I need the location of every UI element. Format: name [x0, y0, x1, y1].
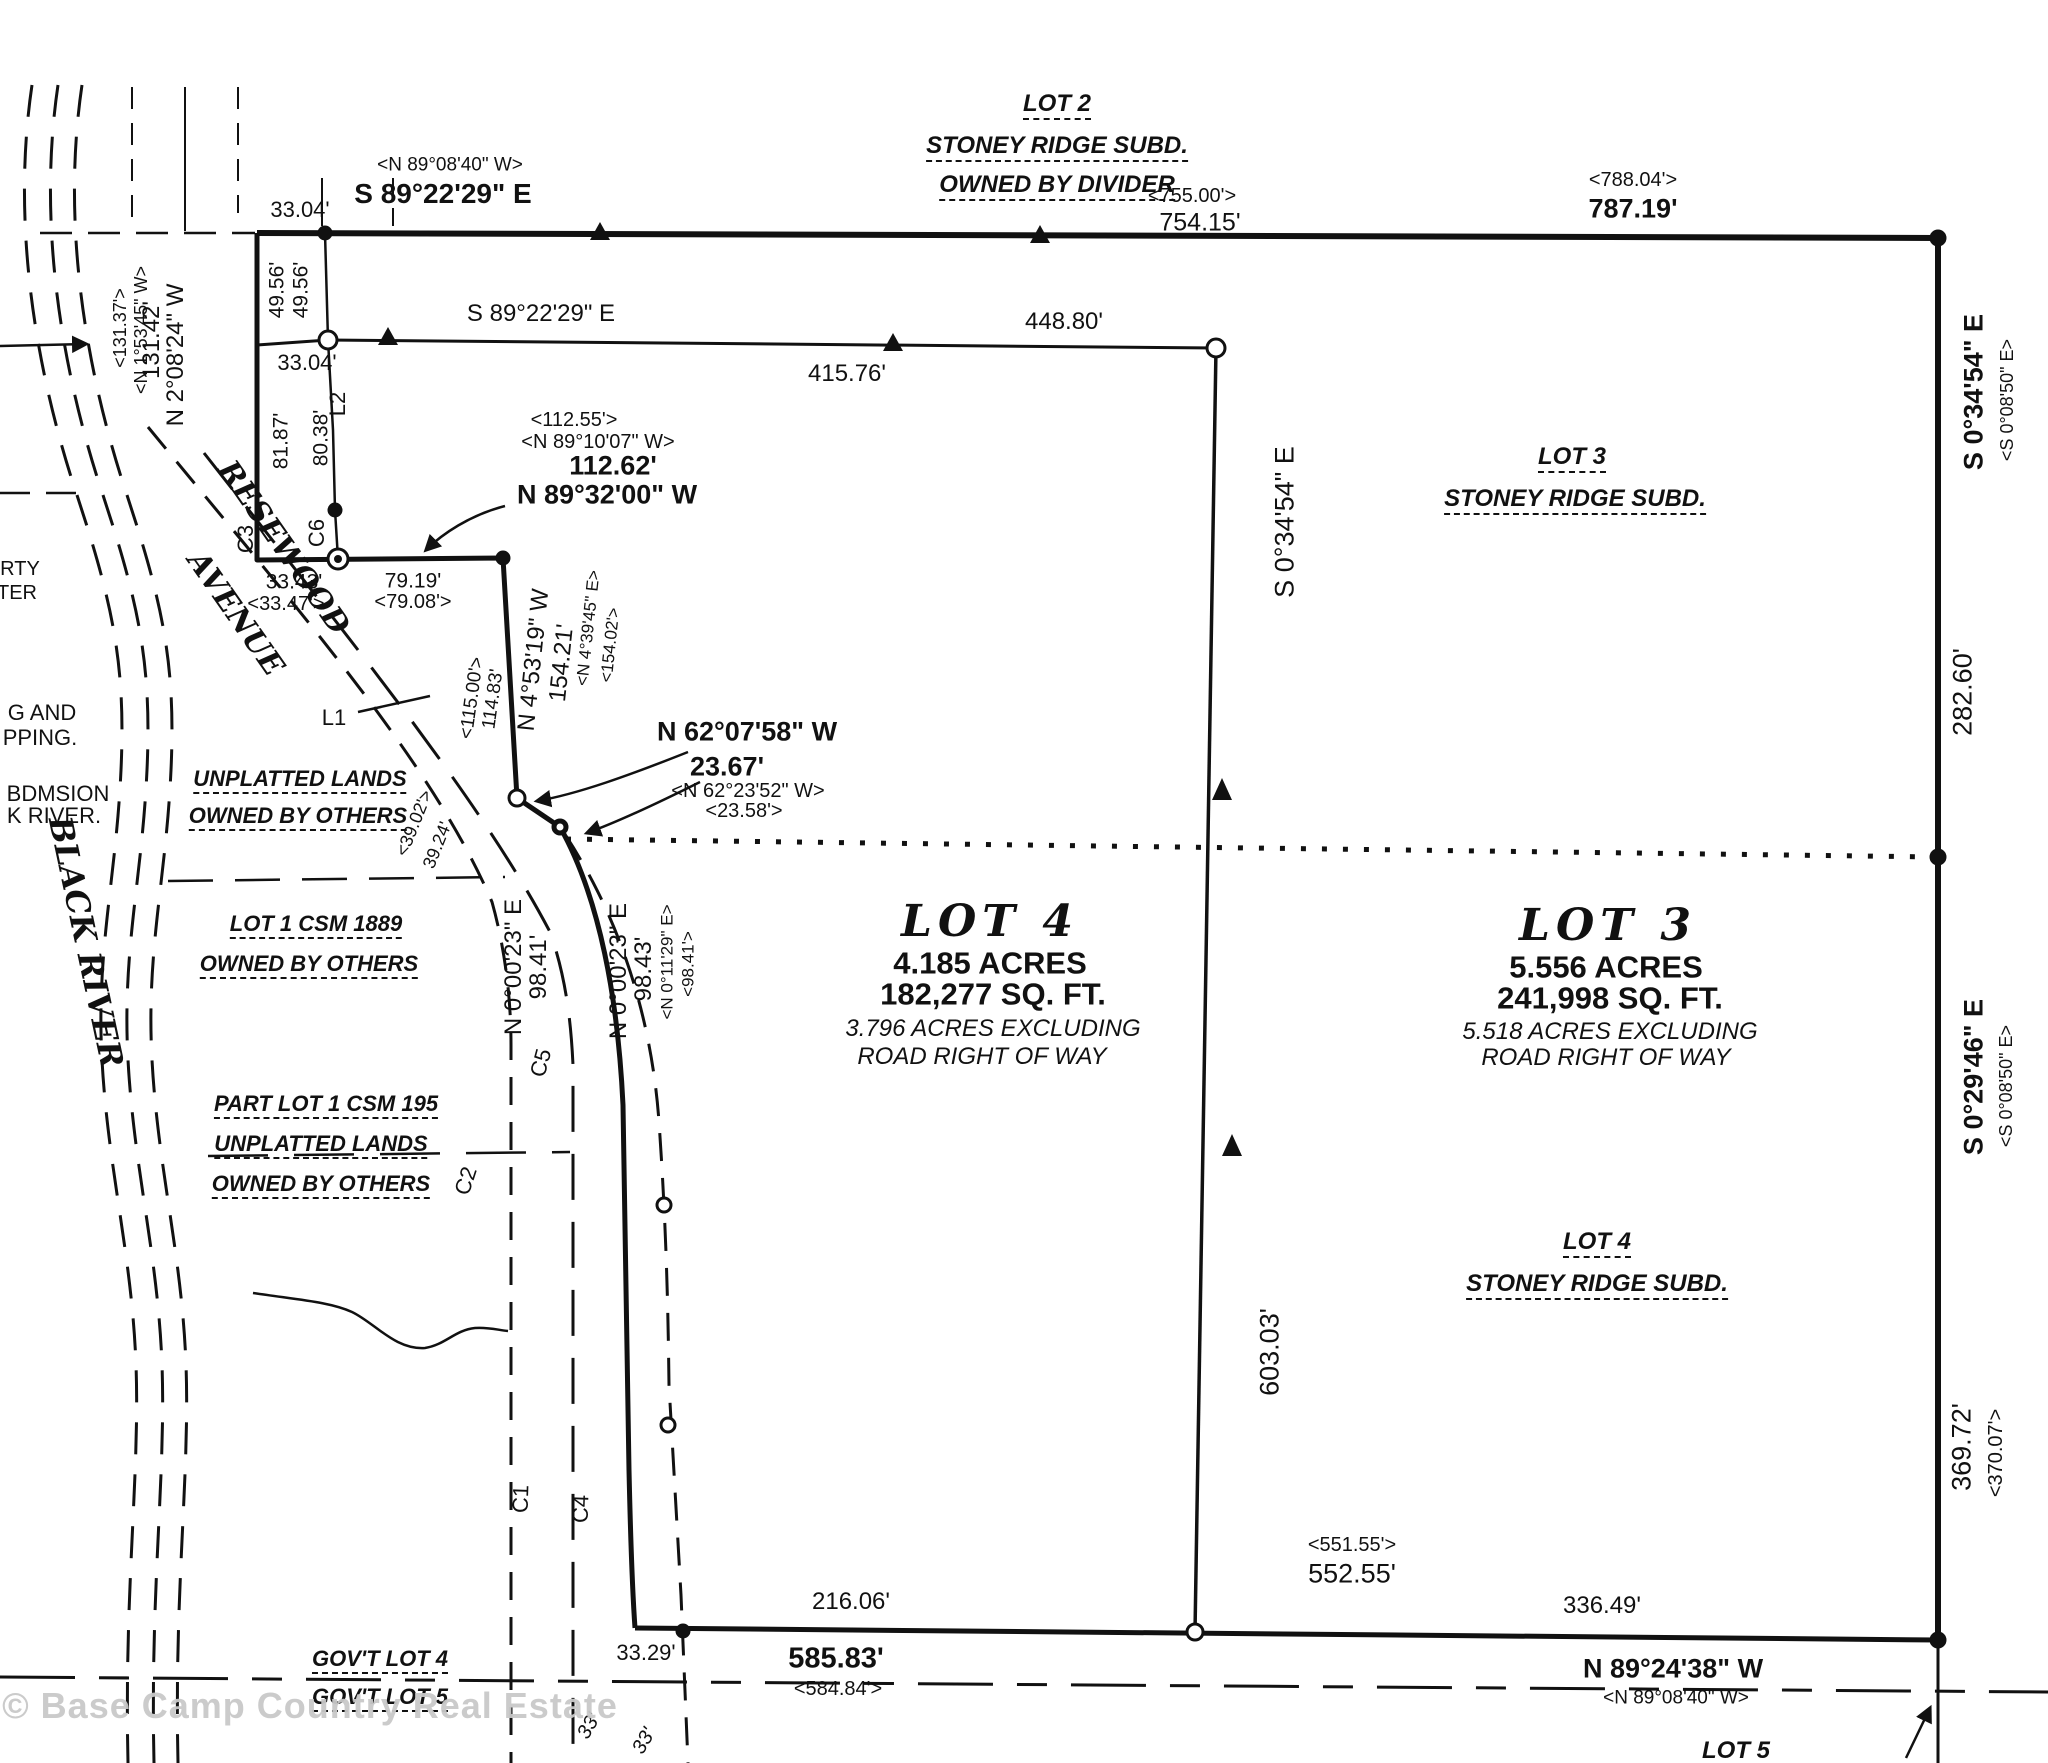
- dim-75500: <755.00'>: [1148, 186, 1236, 206]
- lot4-se-subd: STONEY RIDGE SUBD.: [1466, 1272, 1728, 1300]
- lbl-c5: C5: [527, 1047, 556, 1080]
- dim-37007: <370.07'>: [1986, 1409, 2006, 1497]
- unplatted-1a: UNPLATTED LANDS: [193, 768, 406, 794]
- dim-55155: <551.55'>: [1308, 1535, 1396, 1555]
- dim-13137: <131.37'>: [111, 288, 129, 368]
- lot3-ne-title: LOT 3: [1538, 445, 1606, 473]
- dim-78719: 787.19': [1588, 196, 1677, 223]
- brg-s03454e-int: S 0°34'54" E: [1272, 446, 1299, 598]
- lot3-excl-1: 5.518 ACRES EXCLUDING: [1462, 1020, 1757, 1044]
- lot3-acres: 5.556 ACRES: [1509, 952, 1703, 983]
- dim-60303: 603.03': [1257, 1308, 1284, 1396]
- dim-58583: 585.83': [788, 1645, 884, 1674]
- brg-n892438w: N 89°24'38" W: [1583, 1656, 1763, 1683]
- dim-11262: 112.62': [569, 453, 657, 480]
- dim-7919: 79.19': [385, 571, 442, 592]
- lot4-excl-1: 3.796 ACRES EXCLUDING: [845, 1017, 1140, 1041]
- csm195-c: OWNED BY OTHERS: [212, 1173, 430, 1199]
- lot4-excl-2: ROAD RIGHT OF WAY: [857, 1045, 1106, 1069]
- dim-3304-2: 33.04': [277, 352, 336, 374]
- dim-11255: <112.55'>: [531, 410, 618, 430]
- dim-4956-a: 49.56': [267, 262, 288, 319]
- dim-4956-b: 49.56': [291, 262, 312, 319]
- dim-55255: 552.55': [1308, 1561, 1396, 1588]
- dim-78804: <788.04'>: [1589, 170, 1677, 190]
- brg-n891007w: <N 89°10'07" W>: [521, 432, 674, 452]
- dim-3924: 39.24': [420, 819, 455, 871]
- cut-bdmsion: BDMSION: [7, 783, 110, 805]
- brg-n00023e-w: N 0°00'23" E: [502, 899, 526, 1035]
- lot4-sqft: 182,277 SQ. FT.: [880, 979, 1106, 1010]
- cut-pping: PPING.: [3, 727, 78, 749]
- river-name: BLACK RIVER: [44, 813, 129, 1070]
- lot5-se: LOT 5: [1702, 1739, 1770, 1763]
- lbl-l1: L1: [322, 707, 346, 729]
- lot2-subd: STONEY RIDGE SUBD.: [926, 134, 1188, 162]
- brg-n622352w: <N 62°23'52" W>: [671, 781, 824, 801]
- plat-labels: 33.04'S 89°22'29" E<N 89°08'40" W>LOT 2S…: [0, 0, 2048, 1763]
- dim-3329: 33.29': [616, 1642, 675, 1664]
- dim-44880: 448.80': [1025, 310, 1103, 334]
- lbl-c2: C2: [451, 1164, 481, 1198]
- lot3-title: LOT 3: [1519, 904, 1697, 948]
- cut-rty: RTY: [0, 559, 40, 579]
- dim-9841-w: 98.41': [527, 935, 551, 1000]
- dim-7908: <79.08'>: [374, 592, 451, 612]
- watermark: © Base Camp Country Real Estate: [2, 1688, 618, 1724]
- brg-n890840w-top: <N 89°08'40" W>: [377, 156, 523, 175]
- dim-41576: 415.76': [808, 362, 886, 386]
- brg-n620758w: N 62°07'58" W: [657, 719, 837, 746]
- cut-g-and: G AND: [8, 702, 76, 724]
- csm195-a: PART LOT 1 CSM 195: [214, 1093, 438, 1119]
- dim-2358: <23.58'>: [705, 801, 782, 821]
- lbl-c1: C1: [510, 1485, 533, 1514]
- dim-9843: 98.43': [632, 937, 656, 1002]
- dim-8038: 80.38': [311, 410, 332, 467]
- brg-n20824w: N 2°08'24" W: [164, 284, 188, 427]
- brg-s00850e-r1: <S 0°08'50" E>: [1998, 339, 2016, 461]
- dim-33649: 336.49': [1563, 1594, 1641, 1618]
- csm1889-b: OWNED BY OTHERS: [200, 953, 418, 979]
- brg-s892229e-top: S 89°22'29" E: [354, 180, 531, 208]
- lot4-se-title: LOT 4: [1563, 1230, 1631, 1258]
- dim-28260: 282.60': [1950, 648, 1977, 736]
- csm195-b: UNPLATTED LANDS: [214, 1133, 427, 1159]
- dim-9841-e: <98.41'>: [680, 931, 697, 997]
- dim-15402: <154.02'>: [598, 607, 623, 683]
- dim-33-b: 33': [629, 1725, 659, 1758]
- brg-s02946e: S 0°29'46" E: [1961, 999, 1988, 1155]
- brg-n890840w-bot: <N 89°08'40" W>: [1603, 1689, 1749, 1708]
- brg-n01129e: <N 0°11'29" E>: [659, 904, 676, 1019]
- lbl-c4: C4: [570, 1495, 593, 1524]
- brg-n893200w: N 89°32'00" W: [517, 482, 697, 509]
- lot3-excl-2: ROAD RIGHT OF WAY: [1481, 1046, 1730, 1070]
- brg-s892229e-2: S 89°22'29" E: [467, 302, 615, 326]
- lbl-c6: C6: [306, 519, 328, 547]
- csm1889-a: LOT 1 CSM 1889: [230, 913, 402, 939]
- dim-21606: 216.06': [812, 1590, 890, 1614]
- dim-8187: 81.87': [271, 413, 292, 470]
- lot2-title: LOT 2: [1023, 92, 1091, 120]
- lot3-ne-subd: STONEY RIDGE SUBD.: [1444, 487, 1706, 515]
- dim-58484: <584.84'>: [794, 1679, 882, 1699]
- dim-3304-top: 33.04': [270, 199, 329, 221]
- lot2-owner: OWNED BY DIVIDER: [939, 173, 1175, 201]
- dim-15421: 154.21': [546, 623, 578, 703]
- dim-36972: 369.72': [1949, 1403, 1976, 1491]
- lot4-title: LOT 4: [901, 900, 1079, 944]
- govt-lot4: GOV'T LOT 4: [312, 1648, 448, 1674]
- plat-survey-page: 33.04'S 89°22'29" E<N 89°08'40" W>LOT 2S…: [0, 0, 2048, 1763]
- brg-s00850e-r2: <S 0°08'50" E>: [1997, 1025, 2015, 1147]
- brg-n00023e-e: N 0°00'23" E: [607, 903, 631, 1039]
- unplatted-1b: OWNED BY OTHERS: [189, 805, 407, 831]
- brg-n15345w: <N 1°53'45" W>: [132, 266, 150, 394]
- cut-ter: TER: [0, 583, 37, 603]
- dim-75415: 754.15': [1159, 211, 1240, 236]
- lot4-acres: 4.185 ACRES: [893, 948, 1087, 979]
- lot3-sqft: 241,998 SQ. FT.: [1497, 983, 1723, 1014]
- brg-s03454e-right: S 0°34'54" E: [1961, 314, 1988, 470]
- dim-2367: 23.67': [690, 754, 764, 781]
